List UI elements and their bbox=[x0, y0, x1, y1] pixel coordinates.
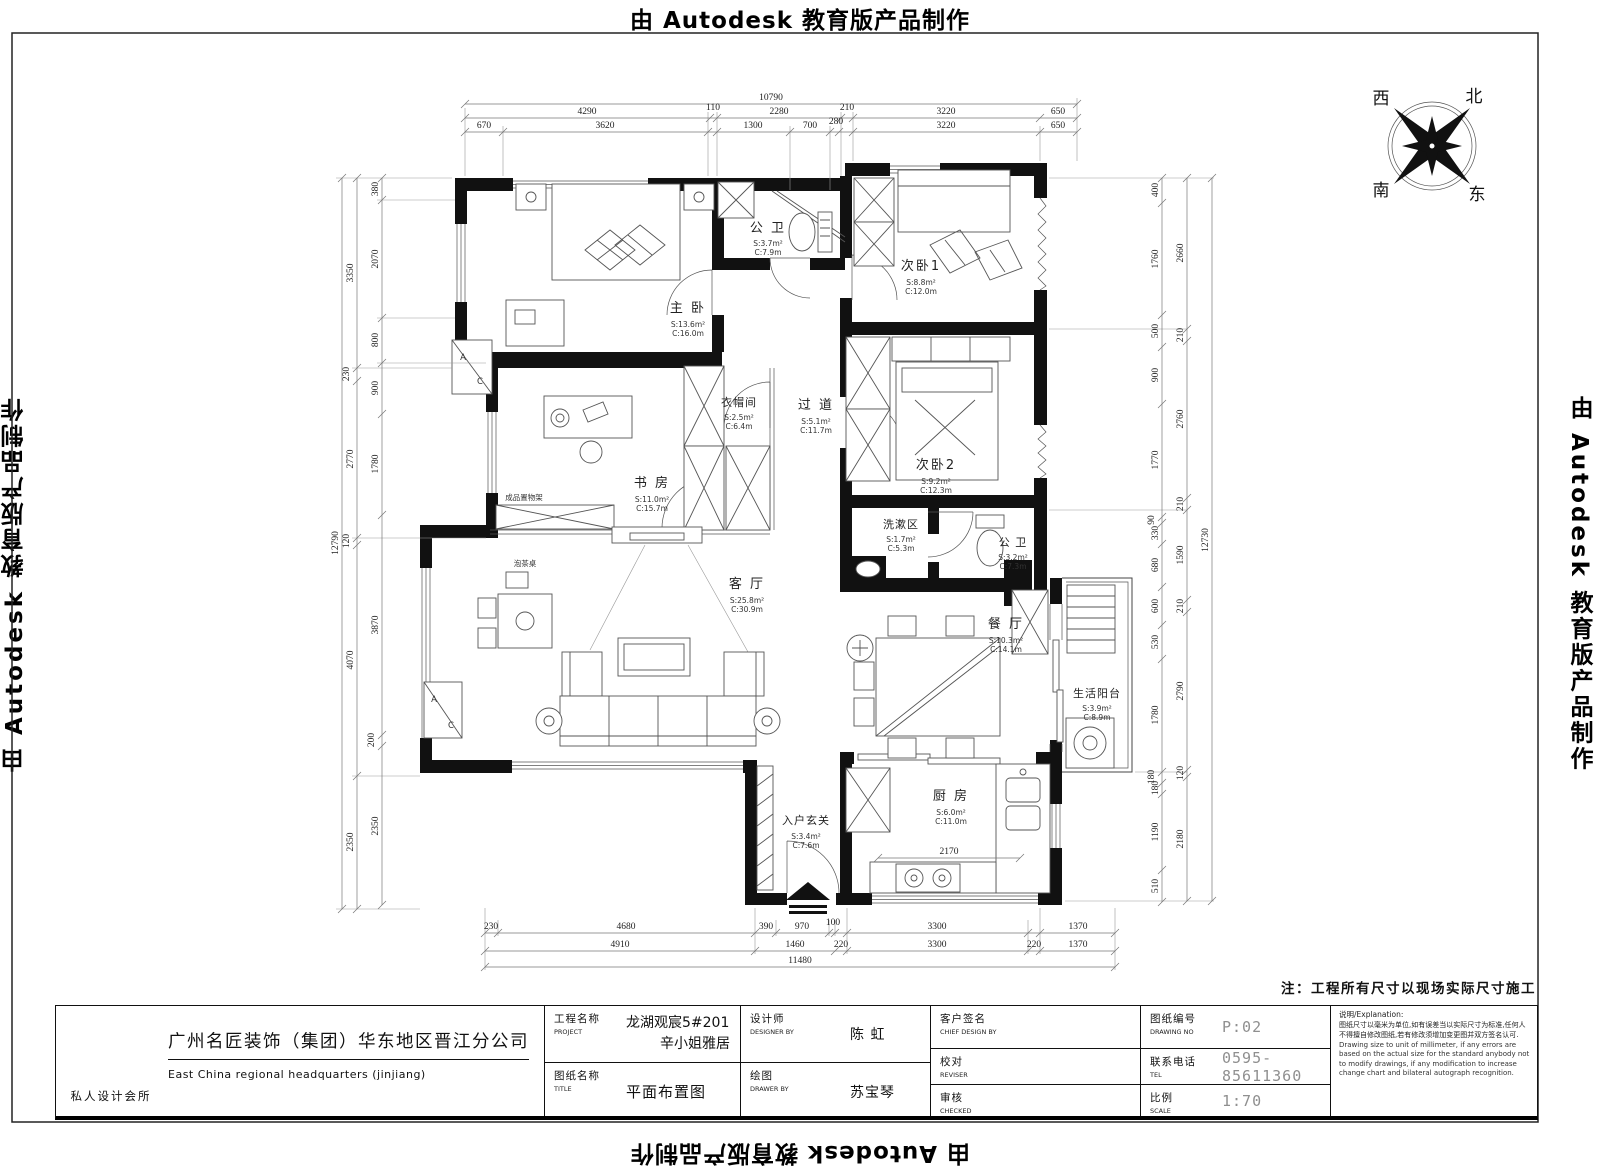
svg-text:S:3.2m²: S:3.2m² bbox=[998, 553, 1028, 562]
room-bed1: 次卧1 bbox=[901, 258, 941, 274]
title-block-project: 工程名称 PROJECT 龙湖观宸5#201 辛小姐雅居 图纸名称 TITLE … bbox=[544, 1006, 740, 1116]
dim-label: 2280 bbox=[770, 107, 789, 117]
dim-label: 4910 bbox=[611, 940, 630, 950]
dim-right-inner: 4001760500900177090330680600530178018018… bbox=[1147, 174, 1166, 906]
dim-label: 2070 bbox=[371, 249, 381, 268]
svg-text:S:2.5m²: S:2.5m² bbox=[724, 413, 754, 422]
dim-label: 3620 bbox=[596, 121, 615, 131]
dim-label: 4290 bbox=[578, 107, 597, 117]
dim-label: 280 bbox=[829, 117, 844, 127]
svg-text:C:12.0m: C:12.0m bbox=[905, 287, 937, 296]
dim-bottom-total: 11480 bbox=[481, 956, 1119, 971]
dim-label: 220 bbox=[1027, 940, 1042, 950]
dim-label: 650 bbox=[1051, 121, 1066, 131]
drawer-label-zh: 绘图 bbox=[750, 1068, 822, 1083]
svg-text:S:11.0m²: S:11.0m² bbox=[635, 495, 669, 504]
dim-label: 1190 bbox=[1151, 822, 1161, 841]
project-label-en: PROJECT bbox=[554, 1028, 626, 1036]
dim-label: 970 bbox=[795, 922, 810, 932]
svg-text:S:6.0m²: S:6.0m² bbox=[936, 808, 966, 817]
svg-text:C:12.3m: C:12.3m bbox=[920, 486, 952, 495]
svg-text:C:7.3m: C:7.3m bbox=[1000, 562, 1027, 571]
dim-label: 3220 bbox=[937, 121, 956, 131]
svg-text:C:6.4m: C:6.4m bbox=[726, 422, 753, 431]
dim-top-row2: 429011022802103220650 bbox=[461, 103, 1081, 122]
tel-label-en: TEL bbox=[1150, 1071, 1222, 1079]
room-kitchen: 厨 房 bbox=[933, 788, 969, 804]
designer-label-en: DESIGNER BY bbox=[750, 1028, 822, 1036]
dim-label: 400 bbox=[1151, 183, 1161, 198]
title-block-approvals: 客户签名 CHIEF DESIGN BY 校对 REVISER 审核 CHECK… bbox=[930, 1006, 1140, 1116]
ac-box-1: A C bbox=[452, 340, 492, 394]
checker-label-zh: 审核 bbox=[940, 1090, 1080, 1105]
svg-text:C:8.9m: C:8.9m bbox=[1084, 713, 1111, 722]
dim-label: 680 bbox=[1151, 558, 1161, 573]
dim-label: 700 bbox=[803, 121, 818, 131]
dim-label: 3300 bbox=[928, 940, 947, 950]
dim-label: 4680 bbox=[617, 922, 636, 932]
dim-label: 670 bbox=[477, 121, 492, 131]
dim-left-outer: 3350230277012040702350 bbox=[342, 174, 361, 913]
room-living: 客 厅 bbox=[729, 576, 765, 592]
drawer-label-en: DRAWER BY bbox=[750, 1085, 822, 1093]
compass-south: 南 bbox=[1373, 181, 1390, 201]
dim-label: 210 bbox=[1176, 497, 1186, 512]
drawing-label-en: TITLE bbox=[554, 1085, 626, 1093]
dim-bottom-row1: 230468039097010033001370 bbox=[481, 918, 1119, 937]
drawing-number: P:02 bbox=[1222, 1018, 1262, 1036]
dim-label: 120 bbox=[1176, 766, 1186, 781]
scale-label-en: SCALE bbox=[1150, 1107, 1222, 1115]
dim-label: 1780 bbox=[371, 454, 381, 473]
room-labels: 公 卫 S:3.7m² C:7.9m 主 卧 S:13.6m² C:16.0m … bbox=[505, 221, 1121, 850]
dim-label: 11480 bbox=[788, 956, 812, 966]
room-wash: 洗漱区 bbox=[883, 518, 919, 531]
dim-right-total: 12730 bbox=[1201, 174, 1216, 905]
dim-label: 800 bbox=[371, 333, 381, 348]
project-label-zh: 工程名称 bbox=[554, 1011, 626, 1026]
sheet-frame bbox=[12, 33, 1538, 1122]
title-block-numbers: 图纸编号 DRAWING NO P:02 联系电话 TEL 0595-85611… bbox=[1140, 1006, 1330, 1116]
dim-label: 1780 bbox=[1151, 705, 1161, 724]
dim-label: 3300 bbox=[928, 922, 947, 932]
compass-west: 西 bbox=[1373, 89, 1390, 109]
scale-value: 1:70 bbox=[1222, 1092, 1262, 1110]
project-name: 龙湖观宸5#201 辛小姐雅居 bbox=[626, 1013, 730, 1055]
dim-label: 4070 bbox=[346, 650, 356, 669]
dim-label: 230 bbox=[342, 367, 352, 382]
title-block-brand: 私人设计会所 广州名匠装饰（集团）华东地区晋江分公司 East China re… bbox=[56, 1006, 544, 1116]
dim-label: 2170 bbox=[940, 847, 959, 857]
dim-label: 3870 bbox=[371, 615, 381, 634]
svg-text:S:3.7m²: S:3.7m² bbox=[753, 239, 783, 248]
svg-text:C:7.9m: C:7.9m bbox=[755, 248, 782, 257]
dim-label: 2350 bbox=[346, 832, 356, 851]
dim-label: 2180 bbox=[1176, 829, 1186, 848]
dim-label: 12730 bbox=[1201, 528, 1211, 552]
dim-label: 2770 bbox=[346, 449, 356, 468]
floorplan-sheet: 由 Autodesk 教育版产品制作 由 Autodesk 教育版产品制作 由 … bbox=[0, 0, 1600, 1167]
dim-label: 390 bbox=[759, 922, 774, 932]
studio-name: 私人设计会所 bbox=[56, 1088, 166, 1104]
client-label-zh: 客户签名 bbox=[940, 1011, 1080, 1026]
room-hall: 过 道 bbox=[798, 398, 834, 413]
dim-label: 1770 bbox=[1151, 450, 1161, 469]
svg-text:C:11.0m: C:11.0m bbox=[935, 817, 967, 826]
room-balcony: 生活阳台 bbox=[1073, 686, 1121, 700]
dim-label: 100 bbox=[826, 918, 841, 928]
tel-number: 0595-85611360 bbox=[1222, 1049, 1330, 1085]
room-dining: 餐 厅 bbox=[988, 616, 1024, 632]
svg-text:C:30.9m: C:30.9m bbox=[731, 605, 763, 614]
dim-label: 1760 bbox=[1151, 249, 1161, 268]
compass-rose: 西 北 南 东 bbox=[1373, 87, 1486, 205]
svg-text:S:13.6m²: S:13.6m² bbox=[671, 320, 705, 329]
dim-label: 650 bbox=[1051, 107, 1066, 117]
explanation-zh: 图纸尺寸以毫米为单位,如有误差当以实际尺寸为标准,任何人不得擅自修改图纸,若有修… bbox=[1339, 1021, 1531, 1040]
svg-text:S:3.4m²: S:3.4m² bbox=[791, 832, 821, 841]
dim-label: 2790 bbox=[1176, 681, 1186, 700]
company-name-en: East China regional headquarters (jinjia… bbox=[168, 1068, 426, 1081]
client-label-en: CHIEF DESIGN BY bbox=[940, 1028, 1080, 1036]
svg-text:C: C bbox=[448, 721, 454, 731]
svg-text:S:8.8m²: S:8.8m² bbox=[906, 278, 936, 287]
title-block-designers: 设计师 DESIGNER BY 陈 虹 绘图 DRAWER BY 苏宝琴 bbox=[740, 1006, 930, 1116]
drawingno-label-zh: 图纸编号 bbox=[1150, 1011, 1222, 1026]
svg-text:S:10.3m²: S:10.3m² bbox=[989, 636, 1023, 645]
svg-text:C:11.7m: C:11.7m bbox=[800, 426, 832, 435]
drawing-label-zh: 图纸名称 bbox=[554, 1068, 626, 1083]
explanation-title: 说明/Explanation: bbox=[1339, 1010, 1531, 1020]
dim-label: 900 bbox=[371, 381, 381, 396]
site-note: 注：工程所有尺寸以现场实际尺寸施工 bbox=[1281, 977, 1536, 997]
dim-label: 3220 bbox=[937, 107, 956, 117]
svg-text:S:1.7m²: S:1.7m² bbox=[886, 535, 916, 544]
dim-label: 200 bbox=[367, 733, 377, 748]
ac-label-a: A bbox=[460, 353, 466, 363]
checker-label-en: CHECKED bbox=[940, 1107, 1080, 1115]
title-block-explanation: 说明/Explanation: 图纸尺寸以毫米为单位,如有误差当以实际尺寸为标准… bbox=[1330, 1006, 1537, 1116]
dim-label: 380 bbox=[371, 182, 381, 197]
scale-label-zh: 比例 bbox=[1150, 1090, 1222, 1105]
company-name-zh: 广州名匠装饰（集团）华东地区晋江分公司 bbox=[168, 1028, 529, 1060]
room-entry: 入户玄关 bbox=[782, 813, 830, 827]
dim-label: 3350 bbox=[346, 263, 356, 282]
compass-east: 东 bbox=[1469, 185, 1486, 205]
dim-label: 500 bbox=[1151, 324, 1161, 339]
svg-text:S:9.2m²: S:9.2m² bbox=[921, 477, 951, 486]
svg-text:C:5.3m: C:5.3m bbox=[888, 544, 915, 553]
dim-right-mid: 26602102760210159021027901202180 bbox=[1176, 174, 1191, 905]
svg-text:C:15.7m: C:15.7m bbox=[636, 504, 668, 513]
dim-label: 210 bbox=[1176, 599, 1186, 614]
room-cloak: 衣帽间 bbox=[721, 395, 757, 409]
dim-label: 1460 bbox=[786, 940, 805, 950]
drawer-name: 苏宝琴 bbox=[850, 1082, 895, 1102]
room-bed2: 次卧2 bbox=[916, 457, 956, 473]
svg-text:C:16.0m: C:16.0m bbox=[672, 329, 704, 338]
dim-label: 600 bbox=[1151, 599, 1161, 614]
dim-label: 900 bbox=[1151, 368, 1161, 383]
dim-label: 1370 bbox=[1069, 940, 1088, 950]
room-study: 书 房 bbox=[634, 475, 670, 491]
dim-label: 2350 bbox=[371, 816, 381, 835]
tea-table-label: 泡茶桌 bbox=[514, 558, 537, 568]
svg-text:C:14.1m: C:14.1m bbox=[990, 645, 1022, 654]
dim-label: 12790 bbox=[331, 531, 341, 555]
dim-left-inner: 3802070800900178038702002350 bbox=[367, 174, 386, 909]
dim-label: 1370 bbox=[1069, 922, 1088, 932]
svg-text:S:3.9m²: S:3.9m² bbox=[1082, 704, 1112, 713]
compass-north: 北 bbox=[1466, 87, 1483, 107]
reviser-label-en: REVISER bbox=[940, 1071, 1080, 1079]
dim-top-total: 10790 bbox=[461, 93, 1081, 108]
svg-text:C:7.6m: C:7.6m bbox=[793, 841, 820, 850]
dim-label: 2660 bbox=[1176, 243, 1186, 262]
dim-label: 10790 bbox=[759, 93, 783, 103]
dim-label: 230 bbox=[484, 922, 499, 932]
room-bath-mid: 公 卫 bbox=[999, 536, 1028, 549]
designer-name: 陈 虹 bbox=[850, 1024, 885, 1044]
ac-box-2: A C bbox=[424, 682, 462, 738]
svg-text:S:25.8m²: S:25.8m² bbox=[730, 596, 764, 605]
dim-label: 1300 bbox=[744, 121, 763, 131]
ac-label-c: C bbox=[477, 377, 483, 387]
room-master: 主 卧 bbox=[670, 301, 706, 316]
reviser-label-zh: 校对 bbox=[940, 1054, 1080, 1069]
room-bath-top: 公 卫 bbox=[750, 221, 786, 236]
dim-label: 220 bbox=[834, 940, 849, 950]
svg-text:A: A bbox=[431, 695, 437, 705]
shelf-label: 成品置物架 bbox=[505, 492, 543, 502]
entry-arrow bbox=[786, 882, 830, 900]
dim-label: 210 bbox=[840, 103, 855, 113]
dim-label: 120 bbox=[342, 534, 352, 549]
designer-label-zh: 设计师 bbox=[750, 1011, 822, 1026]
dim-bottom-row2: 4910146022033002201370 bbox=[481, 940, 1119, 955]
svg-text:S:5.1m²: S:5.1m² bbox=[801, 417, 831, 426]
dim-label: 210 bbox=[1176, 328, 1186, 343]
dim-label: 510 bbox=[1151, 879, 1161, 894]
explanation-en: Drawing size to unit of millimeter, if a… bbox=[1339, 1041, 1531, 1079]
title-block: 私人设计会所 广州名匠装饰（集团）华东地区晋江分公司 East China re… bbox=[55, 1005, 1538, 1120]
dim-label: 90 bbox=[1147, 515, 1157, 525]
dim-label: 2760 bbox=[1176, 409, 1186, 428]
drawingno-label-en: DRAWING NO bbox=[1150, 1028, 1222, 1036]
dim-label: 1590 bbox=[1176, 545, 1186, 564]
tel-label-zh: 联系电话 bbox=[1150, 1054, 1222, 1069]
dim-label: 180 bbox=[1151, 781, 1161, 796]
dim-label: 110 bbox=[706, 103, 720, 113]
dim-top-row3: 670362013007002803220650 bbox=[461, 117, 1081, 136]
drawing-name: 平面布置图 bbox=[626, 1081, 706, 1102]
dim-label: 330 bbox=[1151, 526, 1161, 541]
dim-label: 530 bbox=[1151, 635, 1161, 650]
